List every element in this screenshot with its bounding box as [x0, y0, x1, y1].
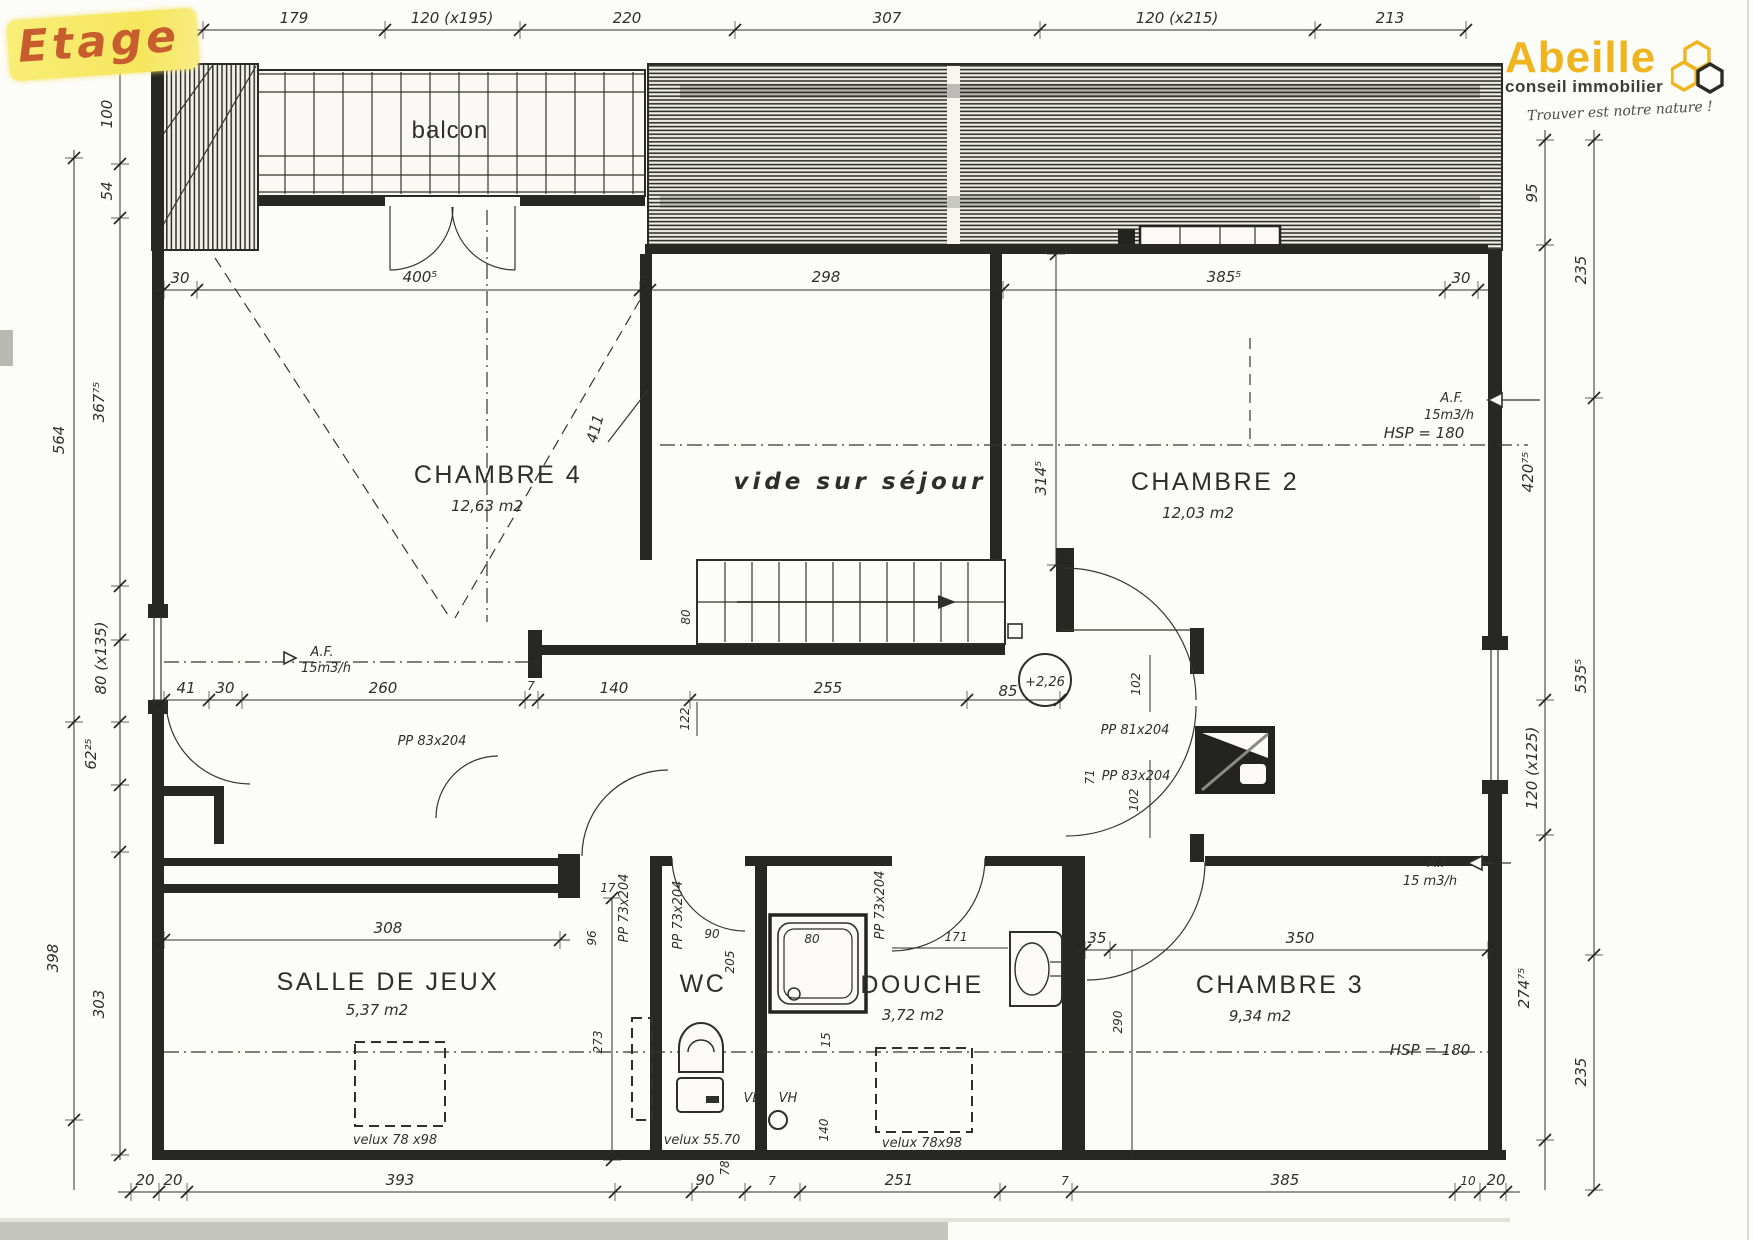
svg-text:15: 15	[819, 1032, 833, 1047]
dimension-chain-top: 41 179 120 (x195) 220 307 120 (x215) 213	[140, 9, 1472, 39]
velux-salle-label: velux 78 x98	[353, 1133, 437, 1148]
svg-text:7: 7	[1061, 1174, 1069, 1188]
ve-label: VE	[743, 1091, 761, 1106]
left-door-arc	[166, 700, 250, 784]
svg-text:30: 30	[215, 679, 234, 697]
room-label-wc: WC	[680, 970, 727, 998]
room-label-salle-de-jeux: SALLE DE JEUX	[277, 968, 500, 996]
room-label-balcon: balcon	[412, 117, 489, 144]
svg-text:7: 7	[641, 274, 649, 288]
svg-text:80 (x135): 80 (x135)	[92, 621, 110, 694]
svg-text:17: 17	[600, 881, 616, 895]
svg-text:35: 35	[1087, 929, 1106, 947]
douche-door-arc	[892, 858, 985, 951]
svg-text:298: 298	[812, 268, 841, 286]
logo-brand: Abeille	[1505, 40, 1663, 75]
svg-text:120 (x195): 120 (x195)	[411, 9, 494, 27]
room-area-salle-de-jeux: 5,37 m2	[346, 1001, 408, 1019]
svg-text:411: 411	[583, 413, 608, 445]
level-mark-label: +2,26	[1025, 675, 1065, 690]
svg-text:7: 7	[527, 679, 535, 693]
svg-text:85: 85	[998, 682, 1017, 700]
etage-text: Etage	[16, 11, 181, 73]
af-ch2-flow: 15m3/h	[1424, 408, 1474, 423]
svg-text:62²⁵: 62²⁵	[82, 738, 100, 769]
svg-text:400⁵: 400⁵	[403, 268, 438, 286]
svg-text:30: 30	[170, 269, 189, 287]
svg-text:54: 54	[98, 181, 116, 200]
svg-text:10: 10	[1460, 1174, 1476, 1188]
svg-text:255: 255	[814, 679, 843, 697]
corridor-door-arc	[436, 756, 498, 818]
svg-text:102: 102	[1129, 673, 1143, 696]
svg-text:260: 260	[369, 679, 398, 697]
sink-icon	[1010, 932, 1062, 1006]
svg-text:385: 385	[1271, 1171, 1300, 1189]
door-label-pp83-right: PP 83x204	[1102, 769, 1171, 784]
balcony-railing: balcon	[258, 70, 645, 196]
svg-text:314⁵: 314⁵	[1032, 461, 1050, 496]
svg-text:122: 122	[678, 708, 692, 731]
dimension-row-mid: 41 30 260 7 140 255 85	[152, 679, 1066, 709]
dimension-row-upper: 30 400⁵ 7 298 385⁵ 30	[152, 268, 1488, 299]
room-label-douche: DOUCHE	[860, 971, 983, 999]
svg-text:96: 96	[585, 930, 599, 946]
roof-left-block	[152, 64, 258, 250]
left-window	[148, 604, 168, 714]
svg-text:95: 95	[1523, 183, 1541, 202]
svg-text:179: 179	[280, 9, 309, 27]
svg-text:20: 20	[1486, 1171, 1505, 1189]
svg-text:385⁵: 385⁵	[1207, 268, 1242, 286]
toilet-icon	[677, 1023, 723, 1112]
dimension-chain-right-inner: 95 420⁷⁵ 120 (x125) 274⁷⁵	[1515, 130, 1554, 1190]
svg-text:78: 78	[718, 1160, 732, 1176]
svg-text:420⁷⁵: 420⁷⁵	[1519, 452, 1537, 493]
svg-text:393: 393	[386, 1171, 415, 1189]
svg-text:235: 235	[1572, 1058, 1590, 1087]
dimension-chain-left-outer: 564 398	[44, 150, 83, 1190]
hsp-ch2-label: HSP = 180	[1384, 424, 1465, 442]
svg-text:20: 20	[163, 1171, 182, 1189]
svg-text:90: 90	[704, 927, 720, 941]
room-area-douche: 3,72 m2	[882, 1006, 944, 1024]
svg-text:171: 171	[945, 930, 968, 944]
svg-text:273: 273	[591, 1031, 605, 1054]
af-ch2-label: A.F.	[1439, 391, 1463, 406]
af-ch4-label: A.F.	[309, 645, 333, 660]
door-label-pp73-a: PP 73x204	[617, 874, 632, 943]
svg-text:41: 41	[176, 679, 195, 697]
dimension-chain-left-inner: 100 54 367⁷⁵ 80 (x135) 62²⁵ 303	[82, 56, 129, 1161]
velux-wc-label: velux 55.70	[664, 1133, 741, 1148]
logo-subtitle: conseil immobilier	[1505, 77, 1663, 97]
room-label-vide: vide sur séjour	[733, 469, 986, 495]
svg-text:350: 350	[1286, 929, 1315, 947]
svg-text:564: 564	[50, 426, 68, 455]
door-label-pp73-c: PP 73x204	[873, 871, 888, 940]
door-label-pp81: PP 81x204	[1101, 723, 1170, 738]
vh-label: VH	[779, 1091, 798, 1106]
svg-text:535⁵: 535⁵	[1572, 659, 1590, 694]
room-label-chambre3: CHAMBRE 3	[1196, 971, 1364, 999]
room-label-chambre4: CHAMBRE 4	[414, 461, 582, 489]
velux-squares	[355, 1018, 972, 1132]
svg-text:308: 308	[374, 919, 403, 937]
svg-text:7: 7	[768, 1174, 776, 1188]
shower-tray-icon: 80	[770, 915, 866, 1012]
svg-text:220: 220	[613, 9, 642, 27]
af-ch3-flow: 15 m3/h	[1403, 874, 1457, 889]
dimension-chain-bottom: 20 20 393 90 7 251 7 385 10 20	[118, 1171, 1520, 1201]
agency-logo: Abeille conseil immobilier Trouver est n…	[1505, 40, 1735, 119]
stairs	[697, 560, 1190, 644]
right-window	[1482, 636, 1508, 794]
salle-door-arc	[582, 770, 668, 856]
room-area-chambre2: 12,03 m2	[1162, 504, 1234, 522]
floor-plan-page: balcon	[0, 0, 1753, 1240]
balcony-door	[390, 206, 515, 270]
hsp-ch3-label: HSP = 180	[1390, 1041, 1471, 1059]
level-mark: +2,26	[1019, 654, 1071, 706]
svg-text:20: 20	[135, 1171, 154, 1189]
svg-text:367⁷⁵: 367⁷⁵	[90, 382, 108, 423]
svg-text:80: 80	[679, 609, 693, 625]
svg-text:290: 290	[1111, 1010, 1125, 1033]
floor-plan: balcon	[0, 0, 1753, 1240]
room-area-chambre3: 9,34 m2	[1229, 1007, 1291, 1025]
svg-text:30: 30	[1451, 269, 1470, 287]
door-label-pp73-b: PP 73x204	[671, 881, 686, 950]
svg-text:274⁷⁵: 274⁷⁵	[1515, 968, 1533, 1009]
svg-text:102: 102	[1127, 789, 1141, 812]
svg-text:235: 235	[1572, 256, 1590, 285]
af-ch3-label: A.F	[1427, 856, 1449, 871]
svg-text:120 (x215): 120 (x215)	[1136, 9, 1219, 27]
af-ch4-flow: 15m3/h	[301, 661, 351, 676]
interior-dims: 308 35 350 171 90 314⁵ 411 102 102 122 8…	[155, 248, 1495, 1176]
vh-valve-icon	[769, 1111, 787, 1129]
svg-text:71: 71	[1083, 769, 1097, 784]
svg-text:90: 90	[695, 1171, 714, 1189]
dimension-chain-right-outer: 235 535⁵ 235	[1572, 130, 1603, 1196]
room-label-chambre2: CHAMBRE 2	[1131, 468, 1299, 496]
svg-text:213: 213	[1376, 9, 1405, 27]
svg-text:140: 140	[600, 679, 629, 697]
svg-text:398: 398	[44, 944, 62, 973]
svg-text:100: 100	[98, 100, 116, 129]
velux-douche-label: velux 78x98	[882, 1136, 962, 1151]
chambre3-door-arc	[1087, 862, 1205, 980]
svg-text:251: 251	[885, 1171, 914, 1189]
svg-text:120 (x125): 120 (x125)	[1523, 727, 1541, 810]
roof-right-band	[648, 64, 1502, 252]
room-area-chambre4: 12,63 m2	[451, 497, 523, 515]
door-label-pp83-left: PP 83x204	[398, 734, 467, 749]
shower-dim: 80	[804, 932, 820, 946]
svg-text:303: 303	[90, 990, 108, 1019]
honeycomb-icon	[1671, 40, 1725, 94]
svg-text:307: 307	[873, 9, 902, 27]
svg-text:140: 140	[817, 1118, 831, 1141]
af-ch4-arrow-icon	[284, 652, 296, 664]
window-icon	[1195, 726, 1275, 794]
